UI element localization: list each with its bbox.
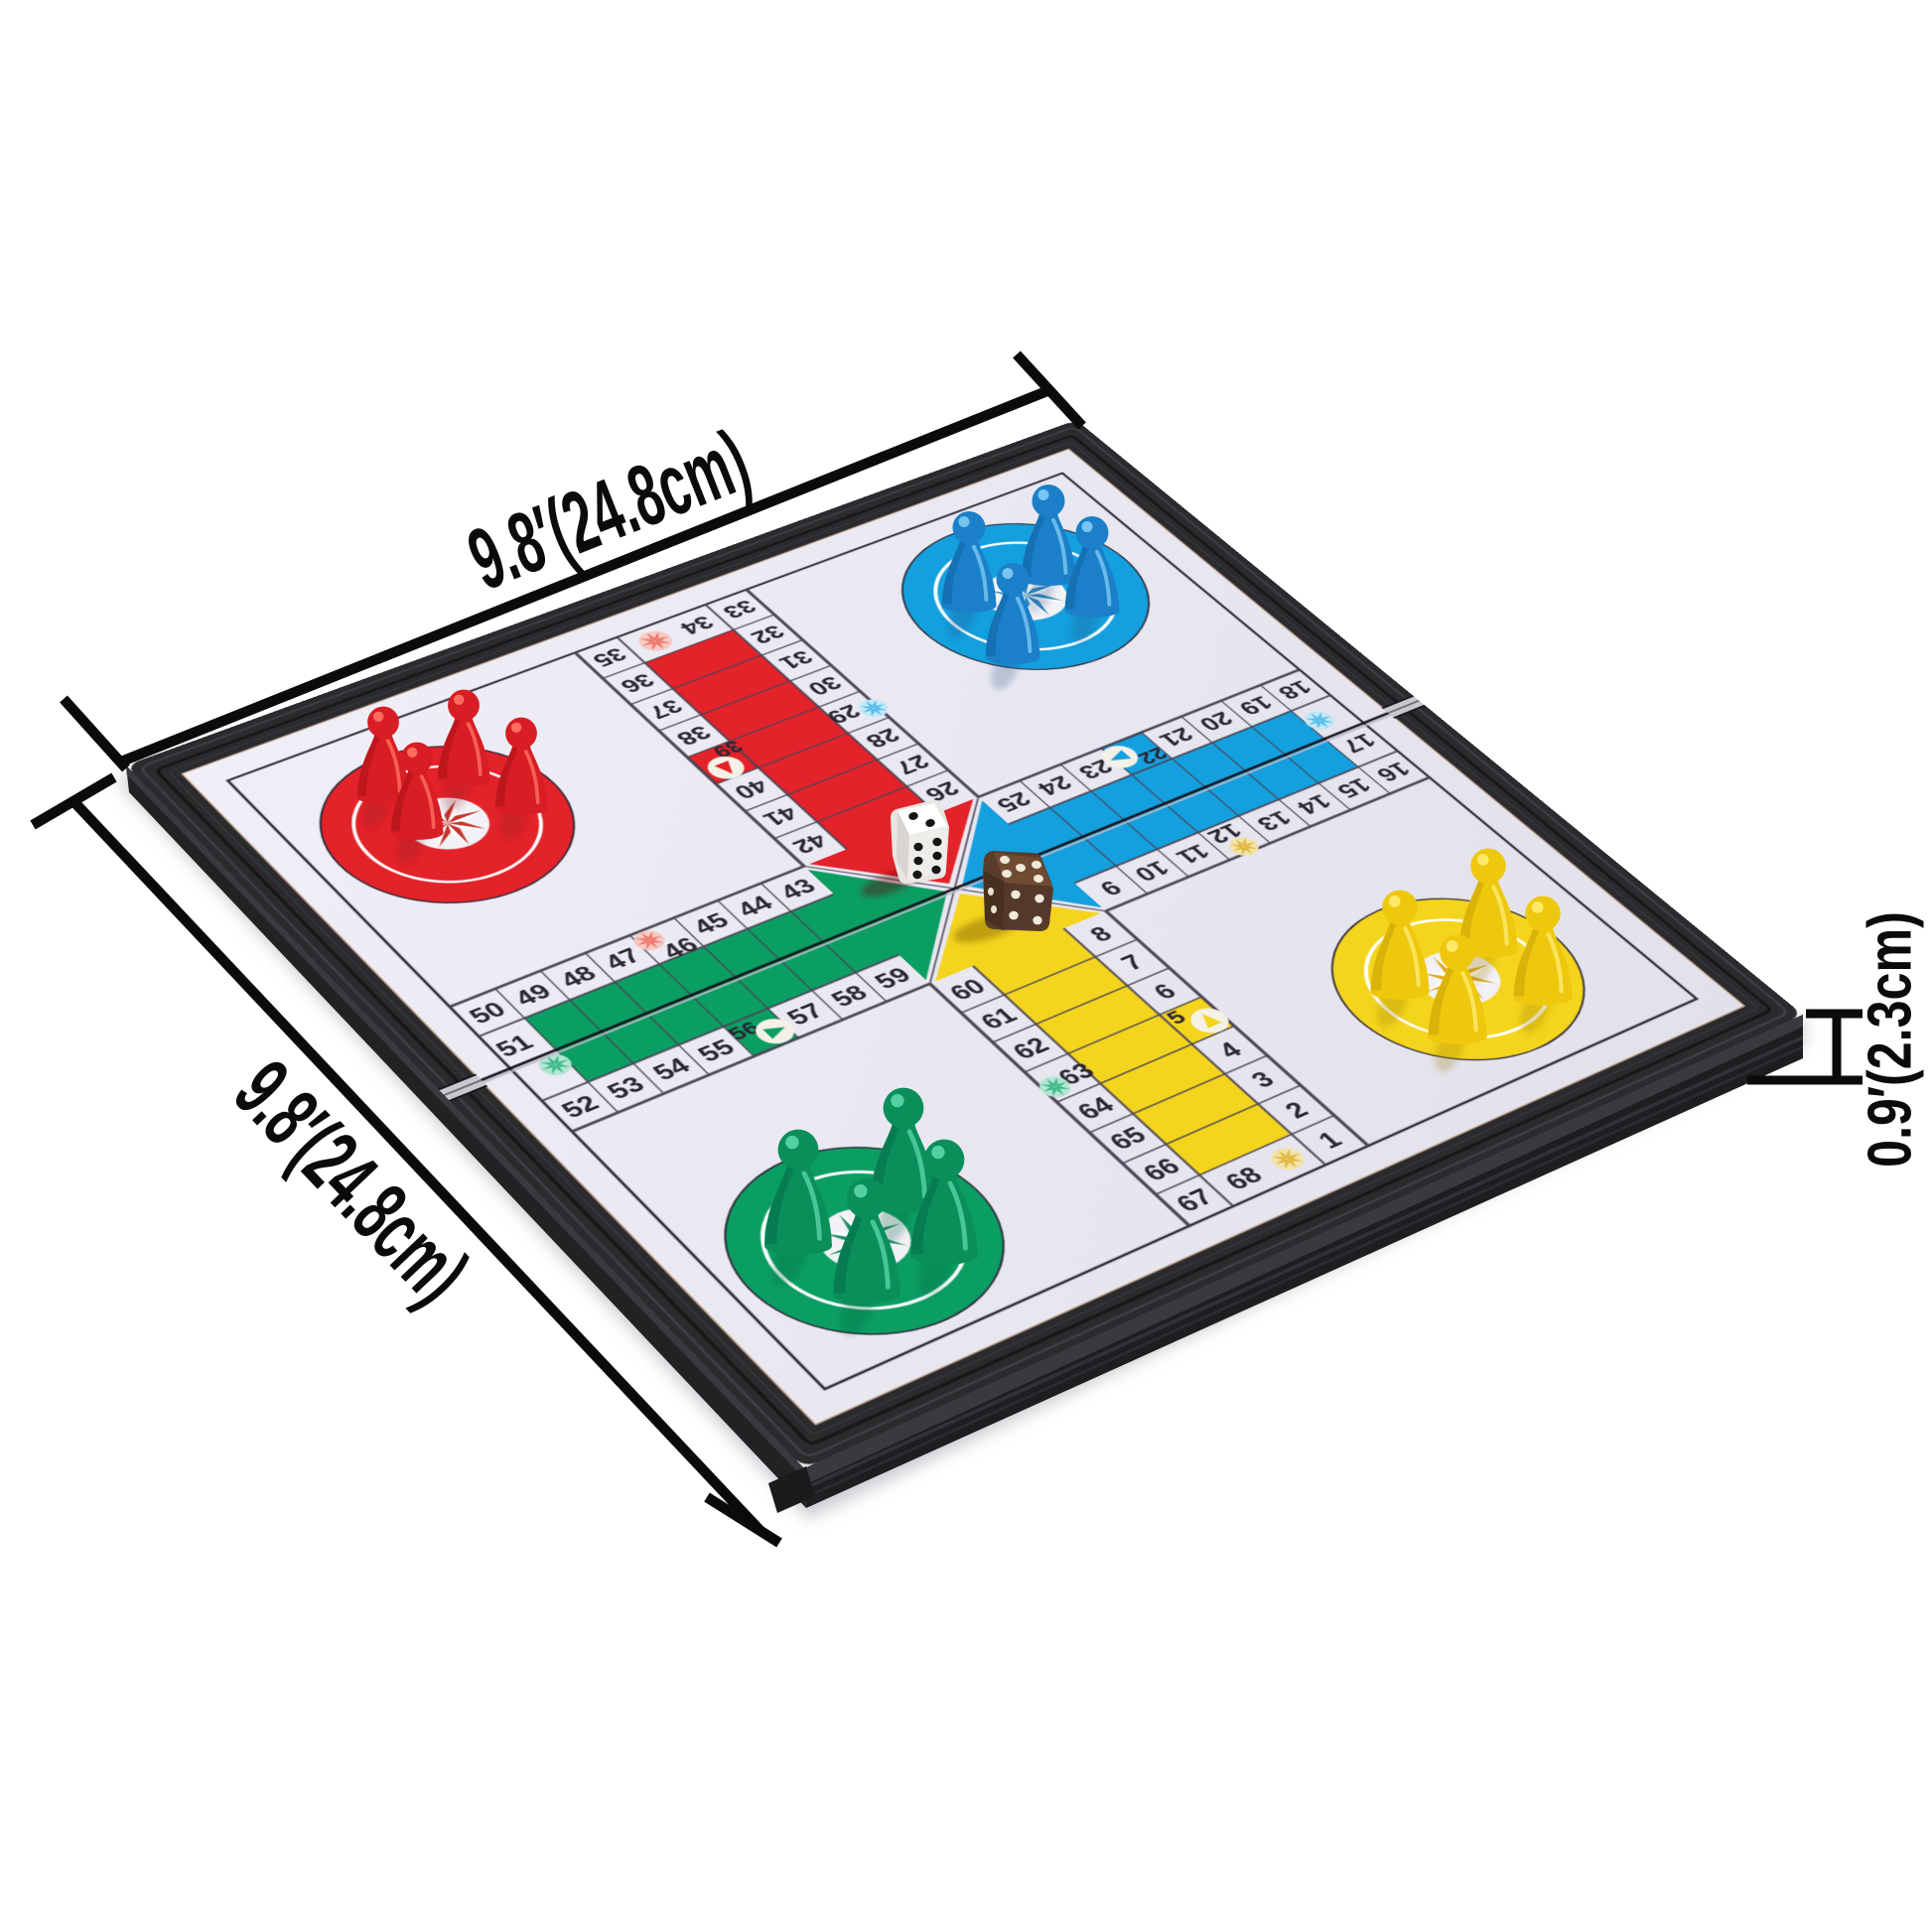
svg-text:9.8′(24.8cm): 9.8′(24.8cm) [216, 1043, 486, 1321]
svg-text:0.9′(2.3cm): 0.9′(2.3cm) [1856, 911, 1924, 1168]
svg-text:9.8′(24.8cm): 9.8′(24.8cm) [456, 412, 761, 609]
